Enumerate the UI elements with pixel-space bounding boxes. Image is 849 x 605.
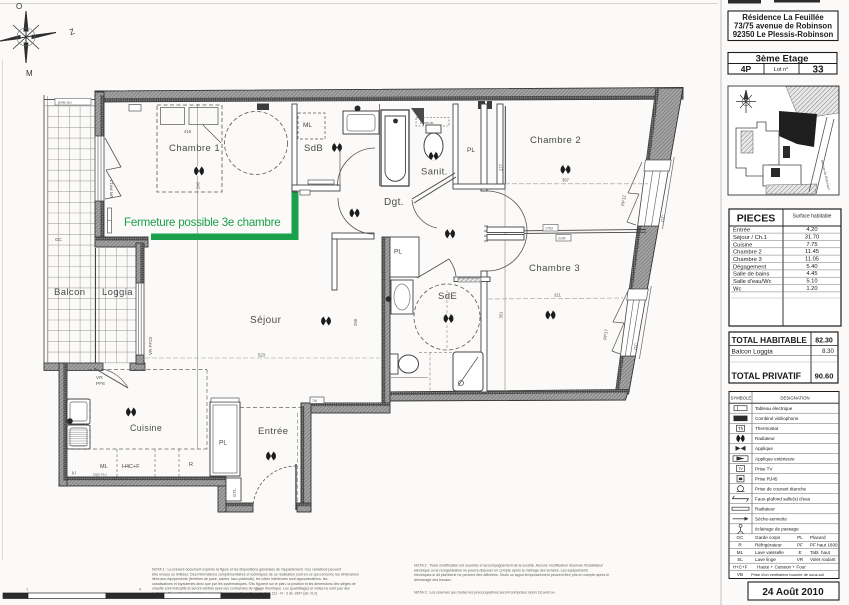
svg-text:Lot n°: Lot n° (774, 67, 788, 73)
svg-text:R: R (189, 462, 193, 468)
svg-text:Applique extérieure: Applique extérieure (755, 456, 795, 461)
svg-text:Sanit.: Sanit. (421, 167, 448, 178)
svg-text:Prise d'un ventilateur bouche: Prise d'un ventilateur bouche de sous-so… (751, 572, 824, 577)
svg-text:NOTA 2 : Toute modification es: NOTA 2 : Toute modification est soumise … (414, 564, 604, 568)
svg-text:VR: VR (797, 557, 804, 562)
svg-text:électrique ou la réorganisatio: électrique ou la réorganisation ne pourr… (414, 568, 588, 572)
svg-text:TOTAL HABITABLE: TOTAL HABITABLE (732, 336, 808, 345)
svg-text:Chambre 1: Chambre 1 (169, 143, 220, 154)
svg-text:canalisations et tuyauteries a: canalisations et tuyauteries ainsi que p… (152, 582, 356, 586)
svg-text:O: O (16, 2, 22, 11)
svg-text:ML: ML (100, 464, 108, 470)
svg-text:419: 419 (184, 129, 192, 134)
svg-text:4P: 4P (741, 64, 752, 74)
svg-text:82.30: 82.30 (815, 338, 833, 345)
svg-text:Chambre 2: Chambre 2 (530, 135, 581, 146)
svg-text:Salle de bains: Salle de bains (733, 272, 770, 278)
svg-text:Séjour: Séjour (250, 315, 282, 326)
svg-text:k.l: k.l (72, 471, 76, 476)
svg-text:SdB: SdB (304, 143, 323, 154)
svg-text:Réfrigérateur: Réfrigérateur (755, 543, 782, 548)
svg-text:PIECES: PIECES (737, 213, 776, 225)
svg-text:11.45: 11.45 (805, 249, 819, 255)
svg-text:Radiateur: Radiateur (755, 436, 775, 441)
svg-text:11.05: 11.05 (805, 257, 819, 263)
svg-text:Surface habitable: Surface habitable (793, 214, 832, 220)
svg-text:PL: PL (219, 440, 227, 447)
svg-text:523: 523 (258, 353, 266, 358)
svg-text:démarrage des travaux.: démarrage des travaux. (414, 578, 452, 582)
svg-text:4.20: 4.20 (806, 227, 817, 233)
svg-text:Garde corps: Garde corps (755, 535, 781, 540)
svg-text:Cuisine: Cuisine (130, 423, 162, 433)
svg-text:NOTA 1 : Le présent document e: NOTA 1 : Le présent document exprime la … (152, 568, 341, 572)
svg-text:Thermostat: Thermostat (755, 426, 779, 431)
svg-text:Sèche-serviette: Sèche-serviette (755, 517, 787, 522)
svg-text:3ème Etage: 3ème Etage (756, 54, 809, 65)
svg-text:Placard: Placard (810, 535, 826, 540)
svg-text:Prise RJ45: Prise RJ45 (755, 476, 778, 481)
svg-text:92350 Le Plessis-Robinson: 92350 Le Plessis-Robinson (733, 30, 834, 39)
svg-text:Applique: Applique (755, 446, 773, 451)
svg-text:PF haut 1600: PF haut 1600 (810, 543, 838, 548)
svg-text:2x04: 2x04 (558, 237, 566, 241)
svg-text:Dgt.: Dgt. (384, 197, 404, 208)
svg-text:H4C+F: H4C+F (122, 464, 140, 470)
svg-text:PL: PL (467, 147, 475, 154)
svg-text:Chambre 3: Chambre 3 (733, 257, 762, 263)
svg-text:240: 240 (196, 181, 201, 189)
svg-text:33: 33 (812, 65, 824, 76)
svg-text:NOTA 3 : Les réserves aux tou: NOTA 3 : Les réserves aux toutes les pré… (414, 591, 555, 595)
svg-text:VB: VB (737, 572, 743, 577)
svg-text:ML: ML (303, 122, 312, 129)
svg-text:Entrée: Entrée (258, 426, 288, 437)
svg-text:Faux-plafond salle(s) d'eau: Faux-plafond salle(s) d'eau (755, 497, 811, 502)
svg-text:Tableau électrique: Tableau électrique (755, 406, 793, 411)
svg-text:Th: Th (738, 426, 744, 431)
svg-text:5.10: 5.10 (806, 279, 817, 285)
svg-text:DESIGNATION: DESIGNATION (780, 396, 809, 401)
svg-text:Balcon: Balcon (54, 287, 85, 298)
svg-text:Prise TV: Prise TV (755, 466, 773, 471)
svg-text:VR PF22: VR PF22 (148, 336, 153, 355)
svg-text:être revues ou limitées. Des i: être revues ou limitées. Des information… (152, 572, 359, 576)
svg-text:GTL: GTL (232, 488, 237, 497)
svg-text:Salle d'eau/Wc: Salle d'eau/Wc (733, 279, 772, 285)
svg-text:VR: VR (96, 375, 103, 381)
svg-text:2m: 2m (255, 587, 261, 592)
svg-text:SL: SL (737, 557, 743, 562)
svg-text:PF6: PF6 (96, 381, 105, 387)
svg-text:Volet roulant: Volet roulant (810, 557, 836, 562)
svg-text:Lave vaisselle: Lave vaisselle (755, 550, 784, 555)
svg-text:TV: TV (738, 467, 743, 471)
svg-text:pote-au: pote-au (58, 100, 72, 105)
svg-text:Chambre 2: Chambre 2 (733, 250, 762, 256)
svg-text:Prise de courant étanche: Prise de courant étanche (755, 486, 807, 491)
svg-text:PF: PF (797, 543, 803, 548)
svg-text:5.40: 5.40 (806, 264, 817, 270)
svg-text:saga ba.u: saga ba.u (93, 473, 107, 477)
svg-text:1763: 1763 (545, 227, 553, 231)
svg-text:ML: ML (737, 550, 744, 555)
svg-text:Cuisine: Cuisine (733, 242, 752, 248)
svg-text:321: 321 (554, 293, 562, 298)
svg-text:électriques si dit plomberie n: électriques si dit plomberie ne peuvent … (414, 573, 609, 577)
svg-text:Lave-m.: Lave-m. (420, 120, 434, 125)
svg-text:Radiateur: Radiateur (755, 507, 775, 512)
svg-text:liées aux équipements (fenêtre: liées aux équipements (fenêtres de pose,… (152, 577, 328, 581)
svg-text:M: M (26, 69, 33, 78)
svg-text:31.70: 31.70 (805, 234, 820, 240)
svg-text:SYMBOLE: SYMBOLE (731, 396, 752, 401)
svg-text:277: 277 (499, 163, 504, 171)
svg-text:PL: PL (797, 535, 803, 540)
svg-text:Balcon Loggia: Balcon Loggia (732, 349, 774, 356)
svg-text:Entrée: Entrée (733, 228, 750, 234)
svg-text:Haute + Cuisson + Four: Haute + Cuisson + Four (757, 565, 806, 570)
svg-text:GC: GC (737, 535, 745, 540)
svg-text:Combiné vidéophone: Combiné vidéophone (755, 416, 799, 421)
svg-text:Lave linge: Lave linge (755, 557, 776, 562)
svg-text:1.20: 1.20 (806, 286, 817, 292)
svg-text:éclairage de passage: éclairage de passage (755, 527, 799, 532)
svg-text:4.45: 4.45 (806, 271, 817, 277)
svg-text:H+C+F: H+C+F (733, 565, 748, 570)
svg-text:Fermeture possible 3e chambre: Fermeture possible 3e chambre (124, 216, 280, 229)
svg-text:PL: PL (394, 249, 402, 256)
svg-text:7/6: 7/6 (312, 399, 317, 403)
svg-text:Tabl. haut: Tabl. haut (810, 550, 831, 555)
svg-text:Dégagement: Dégagement (733, 264, 767, 270)
svg-text:GC: GC (55, 237, 63, 242)
svg-text:TOTAL PRIVATIF: TOTAL PRIVATIF (732, 371, 802, 381)
svg-text:Wc: Wc (733, 286, 741, 292)
svg-text:Séjour / Ch.1: Séjour / Ch.1 (733, 235, 767, 241)
svg-text:7.75: 7.75 (806, 242, 817, 248)
svg-text:E: E (798, 550, 801, 555)
svg-text:VR PF17: VR PF17 (109, 179, 114, 198)
svg-text:SdE: SdE (438, 291, 457, 302)
svg-text:chauffe sont indicatifs et ser: chauffe sont indicatifs et seront vérifi… (152, 587, 350, 591)
svg-text:367: 367 (562, 178, 570, 183)
svg-text:90.60: 90.60 (815, 372, 834, 381)
svg-text:24 Août 2010: 24 Août 2010 (762, 587, 824, 598)
svg-text:8.30: 8.30 (822, 349, 834, 355)
svg-text:351: 351 (499, 311, 504, 319)
svg-text:Chambre 3: Chambre 3 (529, 263, 580, 274)
svg-text:259: 259 (353, 318, 358, 326)
svg-text:Loggia: Loggia (102, 287, 133, 298)
